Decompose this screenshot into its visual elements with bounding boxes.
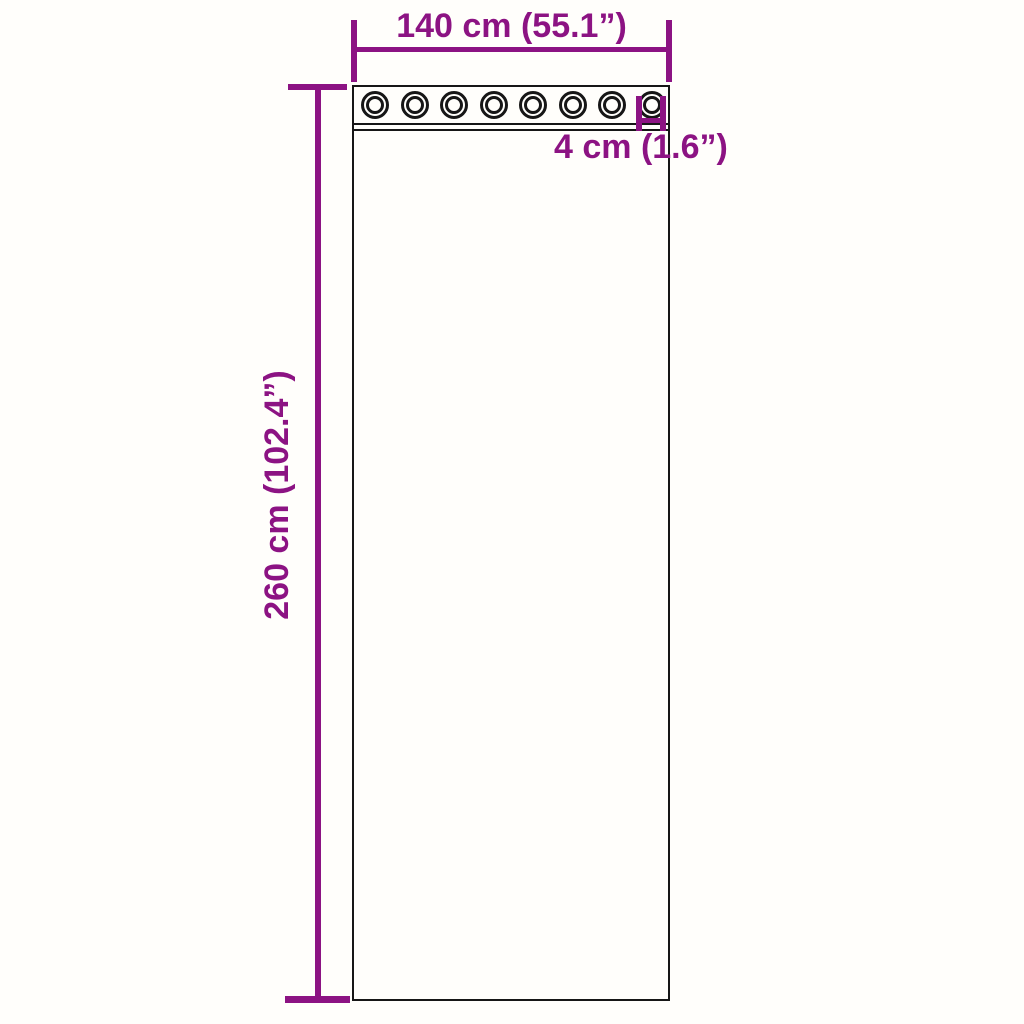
grommet-inner-ring	[524, 96, 542, 114]
grommet-inner-ring	[366, 96, 384, 114]
grommet-row	[354, 91, 668, 119]
grommet-inner-ring	[406, 96, 424, 114]
header-band-bottom-line	[352, 123, 670, 125]
grommet-bracket-right-bar	[660, 96, 666, 131]
curtain-panel	[352, 85, 670, 1001]
grommet-icon	[361, 91, 389, 119]
grommet-bracket-left-bar	[636, 96, 642, 131]
height-dimension-line	[315, 87, 321, 1000]
grommet-inner-ring	[564, 96, 582, 114]
height-dimension-cap-bottom	[285, 996, 350, 1003]
grommet-inner-ring	[643, 96, 661, 114]
grommet-bracket-crossbar	[636, 118, 666, 123]
height-dimension-cap-top	[288, 84, 347, 90]
grommet-icon	[440, 91, 468, 119]
grommet-inner-ring	[445, 96, 463, 114]
height-dimension-label: 260 cm (102.4”)	[260, 370, 294, 620]
grommet-inner-ring	[485, 96, 503, 114]
grommet-diameter-label: 4 cm (1.6”)	[554, 130, 728, 164]
grommet-icon	[519, 91, 547, 119]
width-dimension-line	[353, 47, 670, 52]
grommet-icon	[598, 91, 626, 119]
product-dimension-diagram: 140 cm (55.1”) 260 cm (102.4”) 4 cm (1.6…	[0, 0, 1024, 1024]
grommet-inner-ring	[603, 96, 621, 114]
width-dimension-label: 140 cm (55.1”)	[353, 9, 670, 43]
grommet-icon	[480, 91, 508, 119]
grommet-icon	[559, 91, 587, 119]
grommet-icon	[401, 91, 429, 119]
